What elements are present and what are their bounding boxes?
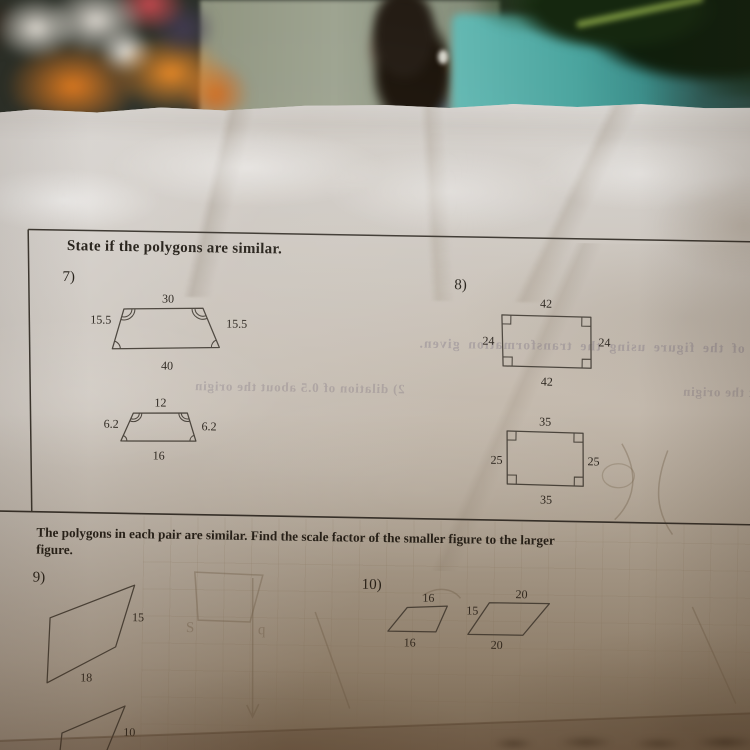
dark-smudges	[470, 728, 750, 750]
section-divider-line	[0, 511, 750, 526]
trapezoid-large-outline	[112, 307, 220, 351]
angle-arc	[211, 340, 216, 348]
angle-arc	[114, 341, 120, 349]
dimension-label: 20	[515, 587, 527, 601]
parallelogram-10-small-figure: 16 16	[375, 588, 466, 651]
dimension-label: 16	[153, 448, 165, 462]
right-angle-mark	[574, 433, 583, 442]
trapezoid-small-figure: 12 6.2 6.2 16	[94, 391, 225, 473]
parallelogram-10-large-outline	[468, 602, 549, 635]
parallelogram-9-large-figure: 15 18	[31, 575, 163, 692]
right-angle-mark	[502, 315, 511, 324]
dimension-label: 40	[161, 359, 173, 373]
dimension-label: 24	[598, 335, 610, 349]
problem-8-number: 8)	[454, 277, 467, 294]
dimension-label: 30	[162, 292, 174, 306]
box-left-border	[24, 229, 36, 511]
dimension-label: 15.5	[90, 312, 111, 326]
snack-bag	[0, 0, 282, 118]
problem-7-number: 7)	[62, 269, 75, 286]
dimension-label: 25	[491, 453, 503, 467]
dimension-label: 25	[588, 454, 600, 468]
dimension-label: 20	[491, 638, 503, 652]
dimension-label: 12	[154, 395, 166, 409]
rectangle-large-figure: 42 24 24 42	[469, 289, 621, 396]
dimension-label: 16	[404, 635, 416, 649]
dimension-label: 24	[482, 334, 494, 348]
right-angle-mark	[582, 317, 591, 326]
dimension-label: 15.5	[226, 317, 247, 331]
dimension-label: 16	[422, 591, 434, 605]
right-angle-mark	[503, 357, 512, 366]
right-angle-mark	[507, 475, 516, 484]
worksheet-paper: e of the figure using the transformation…	[0, 84, 750, 750]
angle-arc	[190, 435, 194, 441]
angle-arc	[123, 435, 127, 440]
rectangle-small-outline	[506, 431, 584, 486]
dimension-label: 15	[466, 603, 478, 617]
parallelogram-10-small-outline	[388, 605, 447, 632]
dimension-label: 6.2	[104, 417, 119, 431]
parallelogram-10-large-figure: 20 15 20	[455, 583, 576, 657]
dimension-label: 6.2	[202, 419, 217, 433]
plant-leaves	[455, 0, 750, 97]
rectangle-large-outline	[501, 315, 592, 368]
dimension-label: 42	[540, 296, 552, 310]
dimension-label: 42	[541, 375, 553, 389]
trapezoid-small-outline	[121, 412, 196, 442]
pot-highlight	[438, 50, 448, 64]
dimension-label: 18	[80, 670, 92, 684]
photo-of-worksheet: e of the figure using the transformation…	[0, 0, 750, 750]
right-angle-mark	[574, 477, 583, 486]
dimension-label: 15	[132, 610, 144, 624]
trapezoid-large-figure: 30 15.5 15.5 40	[76, 280, 267, 378]
right-angle-mark	[507, 431, 516, 440]
dimension-label: 35	[539, 415, 551, 429]
section1-heading: State if the polygons are similar.	[67, 238, 282, 258]
parallelogram-9-large-outline	[47, 584, 135, 684]
right-angle-mark	[582, 359, 591, 368]
rectangle-small-figure: 35 25 25 35	[471, 411, 623, 513]
dimension-label: 35	[540, 493, 552, 507]
